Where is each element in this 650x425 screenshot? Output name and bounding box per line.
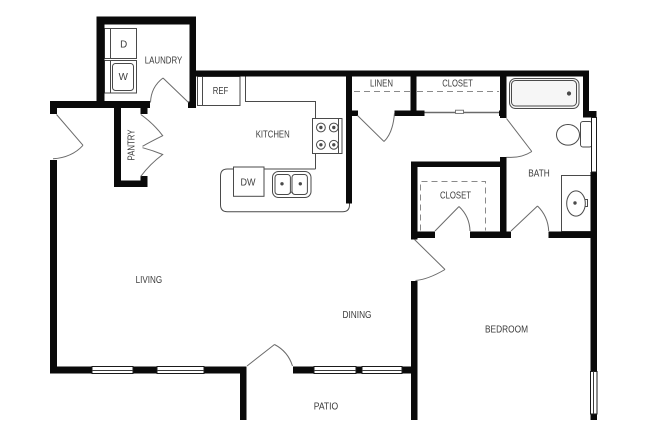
- svg-text:PANTRY: PANTRY: [127, 129, 138, 160]
- svg-text:CLOSET: CLOSET: [440, 191, 471, 202]
- svg-text:KITCHEN: KITCHEN: [256, 130, 290, 141]
- svg-text:D: D: [120, 39, 127, 50]
- svg-text:DINING: DINING: [343, 310, 372, 321]
- svg-text:DW: DW: [241, 177, 257, 188]
- svg-text:LINEN: LINEN: [370, 79, 393, 90]
- svg-text:REF: REF: [213, 86, 229, 97]
- svg-text:BEDROOM: BEDROOM: [485, 324, 528, 335]
- svg-text:W: W: [119, 72, 129, 83]
- svg-text:LIVING: LIVING: [136, 275, 163, 286]
- svg-text:LAUNDRY: LAUNDRY: [145, 56, 183, 67]
- svg-text:PATIO: PATIO: [314, 402, 339, 413]
- svg-text:CLOSET: CLOSET: [442, 79, 473, 90]
- svg-text:BATH: BATH: [528, 169, 550, 180]
